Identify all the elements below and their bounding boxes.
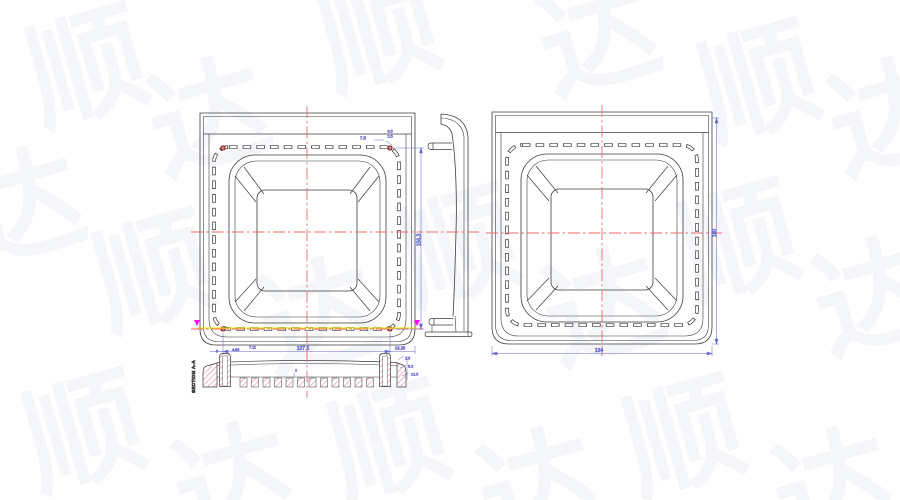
dim-section-b: 8.2 xyxy=(408,365,413,369)
cad-drawing: 107.5 13.25 156.3 7.5 8.5 2.5 5 4.59 7.1… xyxy=(0,0,900,500)
corner-holes xyxy=(220,145,392,331)
dim-width-right: 134 xyxy=(595,348,604,354)
dim-section-d: 2 xyxy=(295,369,297,373)
dim-hole-b: 2.5 xyxy=(388,135,393,139)
recess-outline xyxy=(229,155,386,323)
dim-width-left: 107.5 xyxy=(297,346,310,352)
dim-section-c: 12.5 xyxy=(411,373,418,377)
dim-section-a: 2.5 xyxy=(405,357,410,361)
side-view xyxy=(425,114,481,337)
blueprint-canvas: 顺 达 顺 达 顺 达 达 顺 达 顺 达 顺 达 顺 达 顺 达 顺 达 xyxy=(0,0,900,500)
perforation-ring xyxy=(214,147,399,329)
dim-corner-offset: 13.25 xyxy=(395,345,406,350)
section-label: SECTION A-A xyxy=(191,360,196,393)
profile-outline xyxy=(425,114,472,337)
dim-edge-b: 4.59 xyxy=(232,348,239,352)
section-right-wall xyxy=(397,363,406,387)
dim-height-left: 156.3 xyxy=(417,234,423,247)
dim-edge-a: 5 xyxy=(216,350,218,354)
dimensions-left: 107.5 13.25 156.3 7.5 8.5 2.5 5 4.59 7.1… xyxy=(210,130,424,355)
dim-pitch: 7.5 xyxy=(360,136,367,141)
section-view: SECTION A-A xyxy=(191,350,418,398)
dim-hole-a: 8.5 xyxy=(388,130,393,134)
centerlines-left xyxy=(191,106,423,358)
plan-view-left: 107.5 13.25 156.3 7.5 8.5 2.5 5 4.59 7.1… xyxy=(191,106,424,358)
dim-edge-c: 7.11 xyxy=(249,346,256,350)
plan-view-right: 134 160 xyxy=(486,105,722,356)
dim-height-right: 160 xyxy=(712,229,718,238)
section-left-wall xyxy=(203,363,217,387)
